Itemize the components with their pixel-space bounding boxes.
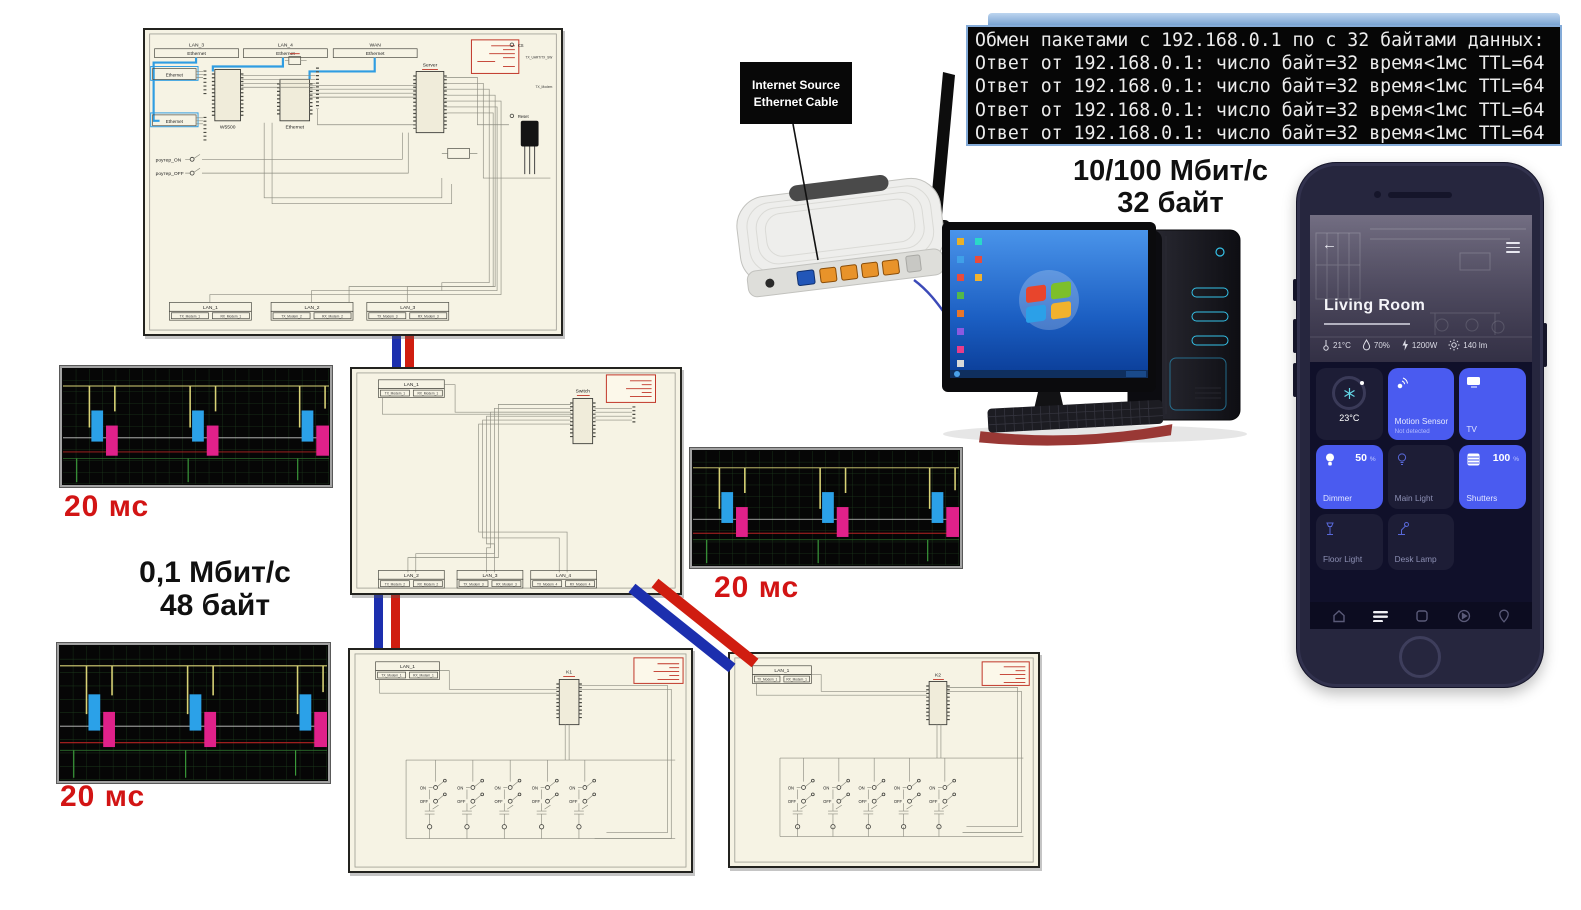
svg-text:Internet Source: Internet Source [752, 78, 840, 92]
back-arrow-icon[interactable]: ← [1322, 237, 1337, 252]
oscilloscope-right [690, 448, 962, 568]
transistor-component [521, 121, 539, 174]
terminal-line: Ответ от 192.168.0.1: число байт=32 врем… [975, 52, 1560, 75]
earpiece [1388, 192, 1452, 198]
server-mcu-chip: Server [415, 63, 446, 133]
tv-icon [1466, 375, 1482, 389]
room-header: ← Living Room 21°C 70% 1200W [1310, 215, 1532, 362]
schematic-server-node: LAN_3Ethernet LAN_4Ethernet WANEthernet … [143, 28, 563, 336]
humidity-stat: 70% [1362, 339, 1390, 351]
bottom-nav [1310, 602, 1532, 629]
dimmer-tile[interactable]: 50 % Dimmer [1316, 445, 1383, 509]
desktop-computer [930, 200, 1270, 448]
lan4-netbox: LAN_4TX_Modem_4RX_Modem_4 [531, 570, 597, 588]
humidity-icon [1362, 339, 1371, 351]
svg-text:W5500: W5500 [220, 125, 236, 131]
svg-text:TX_Modem_2: TX_Modem_2 [281, 314, 302, 318]
snowflake-icon [1343, 387, 1356, 400]
timescale-label-2: 20 мс [60, 780, 145, 814]
svg-text:LAN_3: LAN_3 [189, 42, 204, 48]
svg-text:RX_Modem_1: RX_Modem_1 [220, 314, 241, 318]
shutters-icon [1466, 452, 1481, 467]
router-lan-port [861, 262, 879, 278]
lan2-netbox: LAN_2TX_Modem_2RX_Modem_2 [271, 302, 353, 320]
thermostat-value: 23°C [1322, 413, 1377, 423]
router-lan-port [882, 259, 900, 275]
room-stats: 21°C 70% 1200W 140 lm [1322, 339, 1528, 351]
schematic-wires [382, 385, 634, 573]
schematic-wires [380, 671, 676, 839]
tile-title: Main Light [1395, 493, 1433, 503]
start-orb [954, 371, 960, 377]
ping-terminal: Обмен пакетами с 192.168.0.1 по с 32 бай… [966, 25, 1562, 146]
floor-lamp-icon [1323, 521, 1337, 537]
tile-title: Desk Lamp [1395, 554, 1437, 564]
desk-lamp-tile[interactable]: Desk Lamp [1388, 514, 1455, 570]
svg-text:роутер_OFF: роутер_OFF [156, 171, 184, 177]
svg-text:Ethernet Cable: Ethernet Cable [754, 95, 839, 109]
volume-down-button[interactable] [1293, 363, 1297, 397]
svg-text:LAN_1: LAN_1 [400, 664, 415, 670]
luminosity-icon [1448, 339, 1460, 351]
router-control-switches: роутер_ON роутер_OFF [156, 154, 200, 177]
menu-icon[interactable] [1506, 242, 1520, 256]
main-light-tile[interactable]: Main Light [1388, 445, 1455, 509]
mute-switch[interactable] [1293, 279, 1297, 301]
svg-text:LAN_1: LAN_1 [404, 382, 419, 388]
oscilloscope-bottom [57, 643, 330, 783]
svg-text:Ethernet: Ethernet [187, 51, 206, 57]
power-icon [1401, 339, 1409, 351]
signal-legend-box [606, 375, 655, 403]
router-body [733, 168, 949, 298]
lan1-netbox: LAN_1TX_Modem_1RX_Modem_1 [376, 662, 440, 680]
router-power-switch [906, 255, 922, 273]
thermostat-dial[interactable] [1332, 376, 1366, 410]
tile-title: Shutters [1466, 493, 1497, 503]
location-icon[interactable] [1498, 609, 1510, 623]
lan-header-lan4: LAN_4Ethernet [243, 42, 327, 57]
tile-subtitle: Not detected [1395, 428, 1451, 435]
svg-text:RX_Modem_4: RX_Modem_4 [570, 582, 591, 586]
motion-sensor-tile[interactable]: Motion Sensor Not detected [1388, 368, 1455, 440]
volume-up-button[interactable] [1293, 319, 1297, 353]
svg-text:RX_Modem_2: RX_Modem_2 [322, 314, 343, 318]
svg-text:LAN_2: LAN_2 [404, 573, 419, 579]
thermostat-tile[interactable]: 23°C [1316, 368, 1383, 440]
network-cable-top [392, 330, 414, 370]
tv-tile[interactable]: TV [1459, 368, 1526, 440]
svg-text:Switch: Switch [576, 389, 591, 395]
home-button[interactable] [1399, 636, 1441, 678]
lan1-netbox: LAN_1TX_Modem_1RX_Modem_1 [378, 380, 444, 398]
floor-light-tile[interactable]: Floor Light [1316, 514, 1383, 570]
svg-text:RX_Modem_3: RX_Modem_3 [418, 314, 439, 318]
svg-text:K2: K2 [935, 673, 941, 679]
svg-text:TX_Modem_1: TX_Modem_1 [180, 314, 201, 318]
tile-title: TV [1466, 424, 1477, 434]
luminosity-stat: 140 lm [1448, 339, 1487, 351]
room-title: Living Room [1324, 297, 1425, 315]
svg-text:LAN_3: LAN_3 [400, 305, 415, 311]
svg-text:K1: K1 [566, 670, 572, 676]
svg-text:TX_Modem_3: TX_Modem_3 [377, 314, 398, 318]
cable-blue-stripe [392, 330, 401, 370]
svg-text:LAN_4: LAN_4 [278, 42, 293, 48]
thermometer-icon [1322, 339, 1330, 351]
oscilloscope-top [60, 366, 332, 487]
svg-text:RX_Modem_3: RX_Modem_3 [496, 582, 517, 586]
device-tile-grid: 23°C Motion Sensor Not detected TV 50 % [1316, 368, 1526, 570]
terminal-line: Обмен пакетами с 192.168.0.1 по с 32 бай… [975, 29, 1560, 52]
svg-text:LAN_3: LAN_3 [482, 573, 497, 579]
svg-text:TX_Modem: TX_Modem [536, 85, 553, 89]
router-lan-port [820, 267, 838, 283]
svg-text:Ethernet: Ethernet [276, 51, 295, 57]
svg-text:TX_Modem_1: TX_Modem_1 [381, 674, 402, 678]
svg-text:Ethernet: Ethernet [366, 51, 385, 57]
front-camera [1374, 191, 1381, 198]
svg-text:RX_Modem_1: RX_Modem_1 [786, 678, 807, 682]
tile-title: Dimmer [1323, 493, 1352, 503]
infographic-canvas: LAN_3Ethernet LAN_4Ethernet WANEthernet … [0, 0, 1581, 910]
signal-legend-box [471, 40, 518, 74]
scenes-icon[interactable] [1457, 609, 1471, 623]
schematic-client-2: LAN_1TX_Modem_1RX_Modem_1 K2 [728, 652, 1040, 868]
terminal-line: Ответ от 192.168.0.1: число байт=32 врем… [975, 75, 1560, 98]
cable-red-stripe [391, 590, 400, 652]
smart-home-app-screen: ← Living Room 21°C 70% 1200W [1310, 215, 1532, 629]
svg-text:LAN_1: LAN_1 [203, 305, 218, 311]
bulb-icon [1323, 452, 1337, 468]
svg-text:WAN: WAN [370, 42, 382, 48]
shutters-tile[interactable]: 100 % Shutters [1459, 445, 1526, 509]
lan3-netbox: LAN_3TX_Modem_3RX_Modem_3 [367, 302, 449, 320]
svg-text:роутер_ON: роутер_ON [156, 157, 182, 163]
timescale-label-1: 20 мс [64, 490, 149, 524]
svg-text:RX_Modem_1: RX_Modem_1 [417, 392, 438, 396]
client-mcu-chip: K1 [558, 670, 581, 725]
relay-component [442, 148, 478, 158]
network-cable-mid [374, 590, 401, 652]
cable-red-stripe [405, 330, 414, 370]
windows-taskbar [950, 370, 1148, 378]
ethernet-bus-wires [151, 58, 375, 127]
svg-text:CS: CS [518, 43, 524, 48]
lan3-netbox: LAN_3TX_Modem_3RX_Modem_3 [457, 570, 523, 588]
network-cable-diagonal [610, 578, 780, 678]
svg-text:LAN_2: LAN_2 [305, 305, 320, 311]
router-lan-port [840, 265, 858, 281]
svg-text:TX_Modem_3: TX_Modem_3 [463, 582, 484, 586]
power-stat: 1200W [1401, 339, 1437, 351]
svg-text:Ethernet: Ethernet [166, 72, 184, 77]
svg-text:TX_Modem_1: TX_Modem_1 [385, 392, 406, 396]
home-icon[interactable] [1332, 609, 1346, 623]
lan2-netbox: LAN_2TX_Modem_2RX_Modem_2 [378, 570, 444, 588]
cable-blue-stripe [374, 590, 383, 652]
svg-text:Reset: Reset [518, 114, 530, 119]
tile-title: Motion Sensor [1395, 416, 1451, 426]
svg-text:TX_UART/TX_SW: TX_UART/TX_SW [526, 56, 554, 60]
rooms-menu-icon[interactable] [1373, 610, 1388, 622]
svg-text:Ethernet: Ethernet [285, 125, 304, 131]
devices-icon[interactable] [1415, 609, 1429, 623]
schematic-wires [756, 675, 1023, 837]
lan1-netbox: LAN_1TX_Modem_1RX_Modem_1 [169, 302, 251, 320]
title-underline [1324, 323, 1410, 325]
svg-text:TX_Modem_4: TX_Modem_4 [537, 582, 558, 586]
svg-text:LAN_4: LAN_4 [556, 573, 571, 579]
svg-text:Server: Server [423, 63, 438, 69]
svg-text:TX_Modem_2: TX_Modem_2 [385, 582, 406, 586]
terminal-line: Ответ от 192.168.0.1: число байт=32 врем… [975, 122, 1560, 145]
motion-sensor-icon [1395, 375, 1411, 391]
terminal-line: Ответ от 192.168.0.1: число байт=32 врем… [975, 99, 1560, 122]
w5500-chip: W5500 [213, 69, 242, 130]
router-wan-port [797, 270, 816, 286]
switch-mcu-chip: Switch [572, 389, 595, 444]
empty-grid-cell [1459, 514, 1526, 570]
desk-lamp-icon [1395, 521, 1411, 537]
svg-text:RX_Modem_1: RX_Modem_1 [413, 674, 434, 678]
speed-annotation-mid: 0,1 Мбит/с 48 байт [90, 556, 340, 622]
svg-text:Ethernet: Ethernet [166, 119, 184, 124]
lan-header-lan3: LAN_3Ethernet [155, 42, 239, 57]
client-mcu-chip: K2 [928, 673, 949, 725]
schematic-wires [202, 75, 550, 302]
monitor [942, 222, 1156, 425]
svg-text:TX_Modem_1: TX_Modem_1 [757, 678, 777, 682]
power-button[interactable] [1543, 323, 1547, 367]
tile-title: Floor Light [1323, 554, 1362, 564]
schematic-switch-node: LAN_1TX_Modem_1RX_Modem_1 Switch [350, 367, 682, 595]
schematic-client-1: LAN_1TX_Modem_1RX_Modem_1 K1 [348, 648, 693, 873]
svg-text:RX_Modem_2: RX_Modem_2 [417, 582, 438, 586]
signal-legend-box [982, 662, 1029, 686]
smartphone: ← Living Room 21°C 70% 1200W [1296, 162, 1544, 688]
ethernet-port-left-top: Ethernet [153, 68, 196, 79]
temperature-stat: 21°C [1322, 339, 1351, 351]
wan-header: WANEthernet [333, 42, 417, 57]
light-icon [1395, 452, 1409, 468]
